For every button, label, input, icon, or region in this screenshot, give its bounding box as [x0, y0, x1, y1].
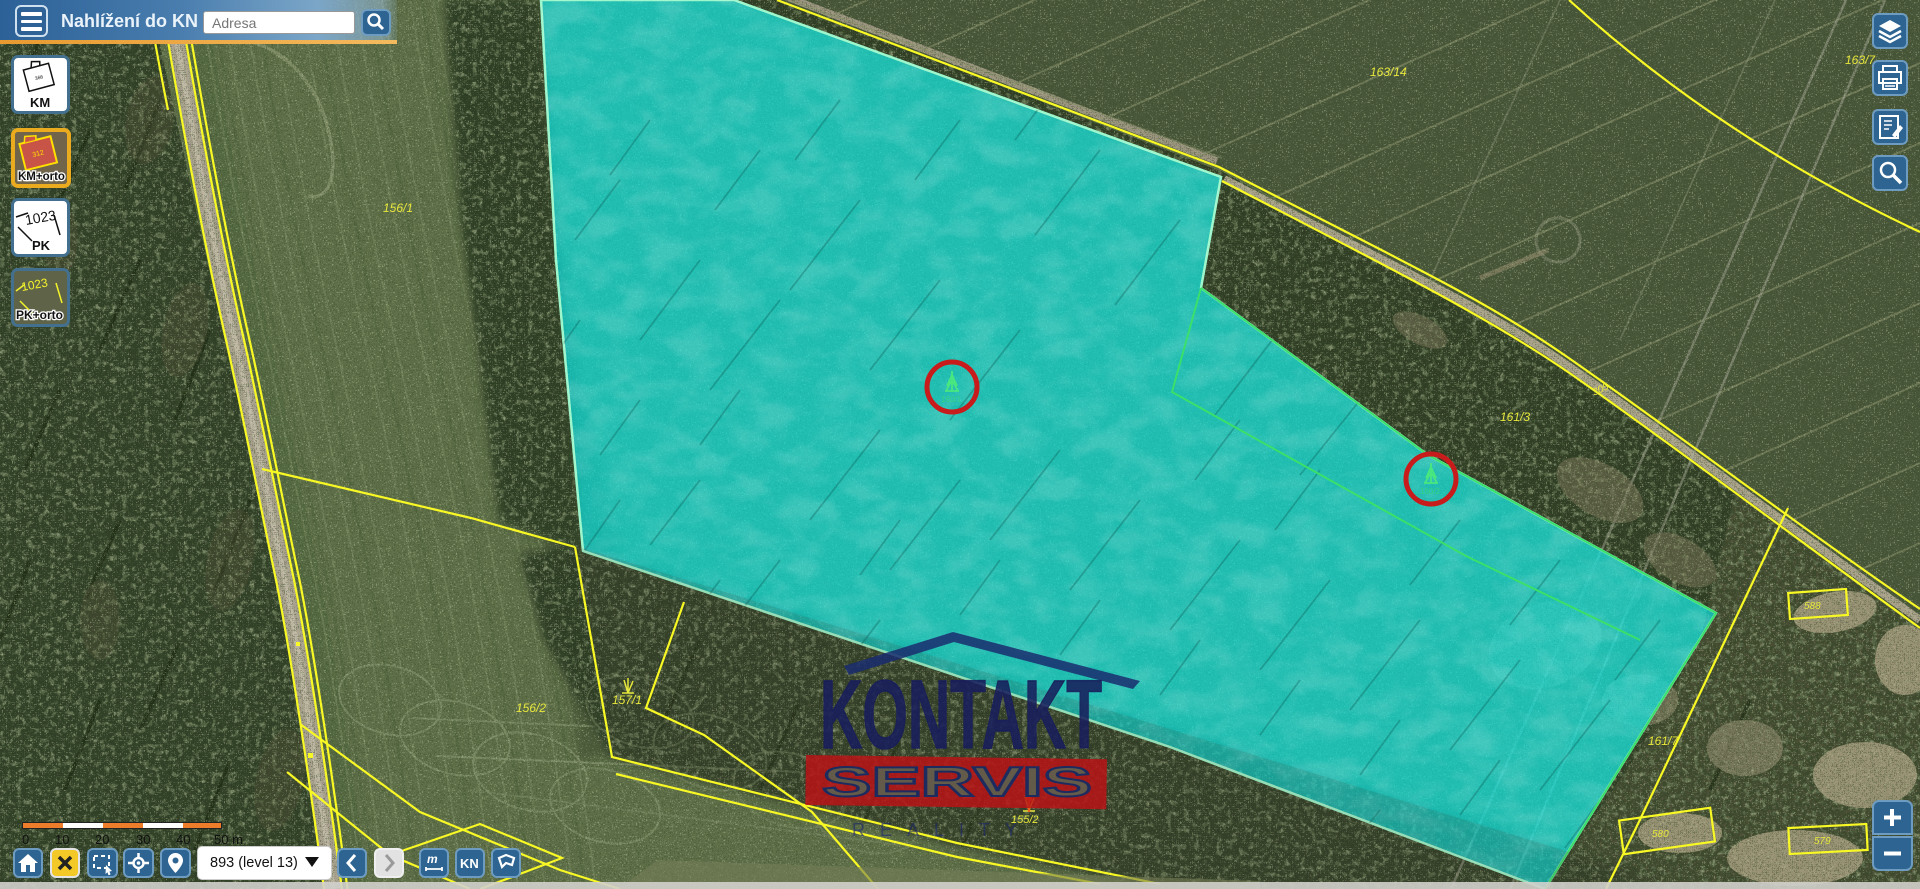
svg-text:580: 580	[1652, 829, 1669, 840]
svg-text:160/2: 160/2	[1420, 487, 1441, 496]
svg-text:PK+orto: PK+orto	[16, 308, 63, 322]
svg-text:579: 579	[1814, 836, 1831, 847]
svg-text:KN: KN	[460, 856, 479, 871]
svg-text:SERVIS: SERVIS	[822, 758, 1092, 805]
svg-text:1023: 1023	[24, 207, 58, 228]
svg-text:157/1: 157/1	[612, 693, 642, 707]
svg-text:163/14: 163/14	[1370, 65, 1407, 79]
svg-text:366: 366	[34, 74, 44, 82]
svg-text:m: m	[427, 852, 438, 866]
svg-text:160/1: 160/1	[941, 395, 962, 404]
svg-text:161/3: 161/3	[1500, 410, 1530, 424]
svg-text:156/2: 156/2	[516, 701, 546, 715]
svg-text:KONTAKT: KONTAKT	[820, 660, 1102, 769]
svg-text:156/1: 156/1	[383, 201, 413, 215]
svg-text:PK: PK	[32, 238, 51, 253]
svg-text:REALITY: REALITY	[852, 820, 1032, 840]
svg-text:161/7: 161/7	[1648, 734, 1679, 748]
svg-text:KM: KM	[30, 95, 50, 110]
svg-text:KM+orto: KM+orto	[18, 171, 65, 183]
svg-text:588: 588	[1804, 601, 1821, 612]
